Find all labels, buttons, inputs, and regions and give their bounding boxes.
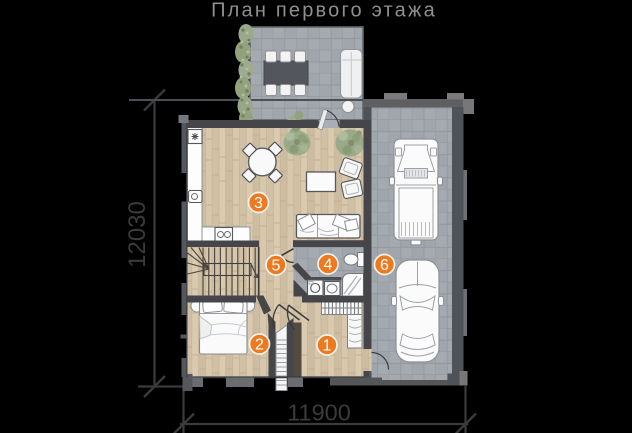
svg-text:12030: 12030 (124, 201, 151, 268)
svg-text:План первого этажа: План первого этажа (211, 0, 437, 22)
svg-text:4: 4 (324, 257, 333, 274)
svg-text:1: 1 (323, 338, 332, 355)
svg-text:5: 5 (272, 258, 281, 275)
svg-text:11900: 11900 (287, 400, 351, 426)
svg-text:3: 3 (254, 195, 263, 212)
svg-text:6: 6 (380, 257, 389, 274)
svg-text:2: 2 (255, 337, 264, 354)
